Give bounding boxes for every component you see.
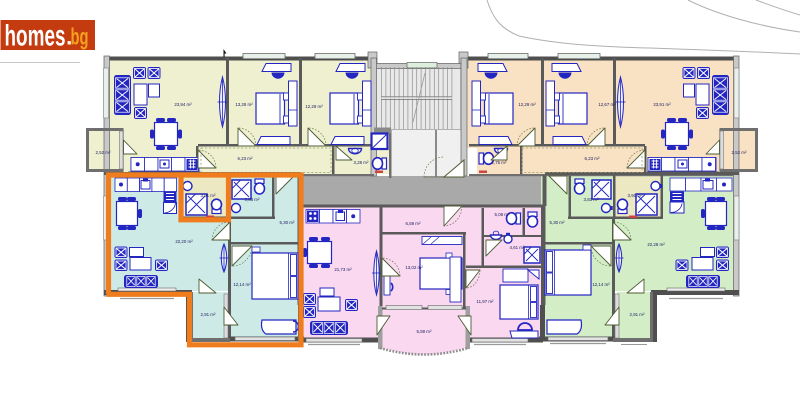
- svg-text:13,28 m²: 13,28 m²: [235, 102, 253, 107]
- svg-text:2,52 m²: 2,52 m²: [732, 150, 747, 155]
- svg-text:2,52 m²: 2,52 m²: [96, 150, 111, 155]
- svg-text:22,28 m²: 22,28 m²: [647, 242, 665, 247]
- svg-text:3,83 m²: 3,83 m²: [584, 197, 599, 202]
- svg-text:23,94 m²: 23,94 m²: [174, 102, 192, 107]
- svg-text:21,73 m²: 21,73 m²: [334, 267, 352, 272]
- svg-text:5,30 m²: 5,30 m²: [550, 220, 565, 225]
- svg-text:5,59 m²: 5,59 m²: [417, 329, 432, 334]
- svg-text:3,83 m²: 3,83 m²: [245, 197, 260, 202]
- svg-text:2,75 m²: 2,75 m²: [492, 160, 507, 165]
- svg-text:12,29 m²: 12,29 m²: [305, 104, 323, 109]
- svg-text:5,08 m²: 5,08 m²: [495, 212, 510, 217]
- svg-text:12,29 m²: 12,29 m²: [518, 102, 536, 107]
- svg-text:6,59 m²: 6,59 m²: [406, 221, 421, 226]
- svg-text:12,67 m²: 12,67 m²: [598, 102, 616, 107]
- svg-text:5,30 m²: 5,30 m²: [280, 220, 295, 225]
- svg-text:2,91 m²: 2,91 m²: [201, 312, 216, 317]
- svg-text:22,20 m²: 22,20 m²: [175, 239, 193, 244]
- svg-text:12,14 m²: 12,14 m²: [233, 282, 251, 287]
- svg-text:11,97 m²: 11,97 m²: [476, 299, 494, 304]
- svg-text:13,02 m²: 13,02 m²: [405, 265, 423, 270]
- svg-text:3,91 m²: 3,91 m²: [201, 193, 216, 198]
- svg-text:23,91 m²: 23,91 m²: [653, 102, 671, 107]
- svg-text:3,28 m²: 3,28 m²: [354, 160, 369, 165]
- svg-text:homes: homes: [5, 20, 66, 53]
- svg-text:6,23 m²: 6,23 m²: [238, 156, 253, 161]
- svg-text:2,91 m²: 2,91 m²: [630, 312, 645, 317]
- svg-text:bg: bg: [71, 24, 89, 50]
- svg-text:12,14 m²: 12,14 m²: [592, 282, 610, 287]
- svg-text:6,23 m²: 6,23 m²: [585, 156, 600, 161]
- svg-text:3,91 m²: 3,91 m²: [628, 193, 643, 198]
- svg-text:4,61 m²: 4,61 m²: [510, 245, 525, 250]
